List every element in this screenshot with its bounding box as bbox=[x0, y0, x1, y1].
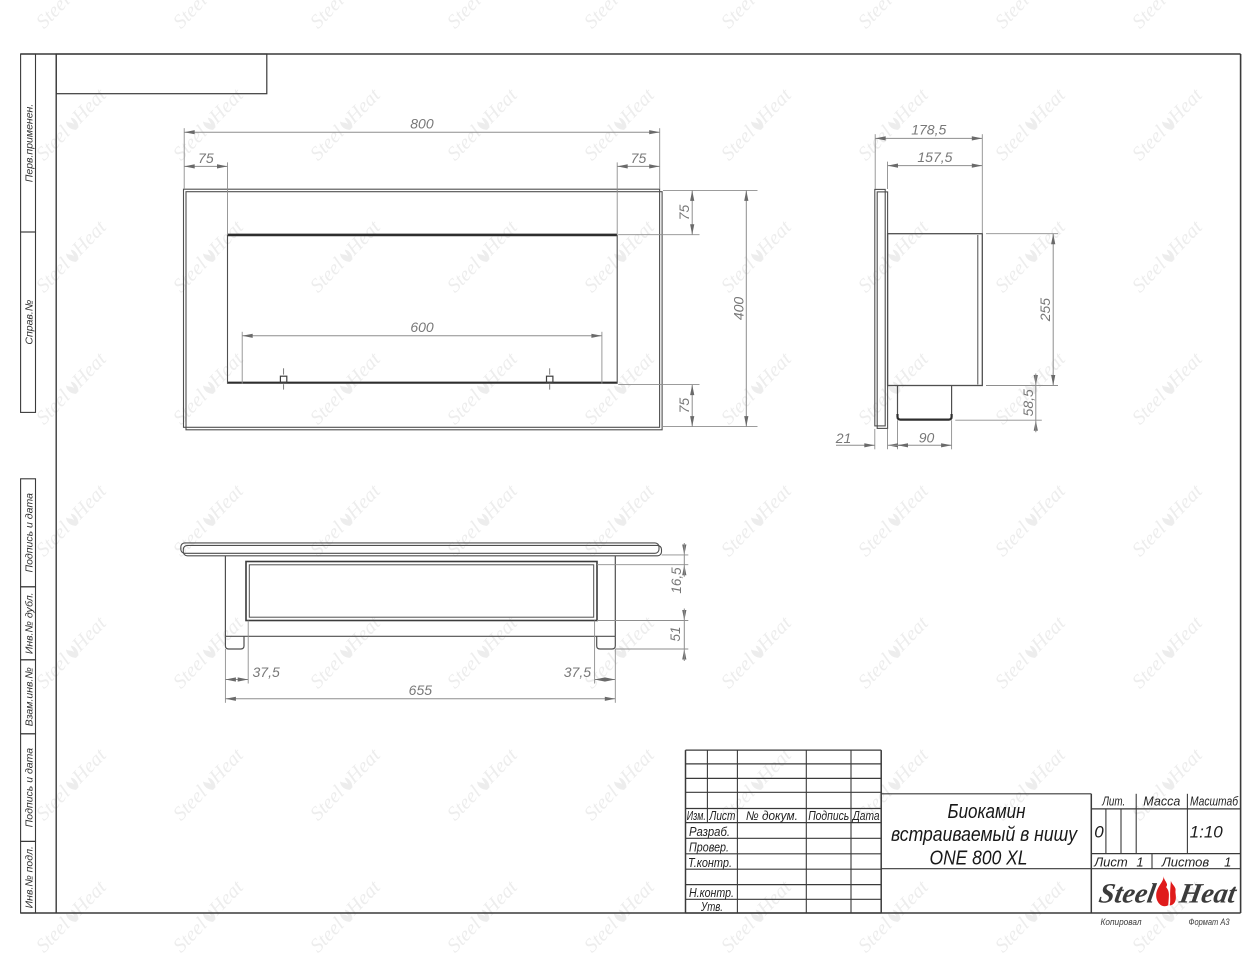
svg-text:178,5: 178,5 bbox=[911, 122, 946, 138]
svg-text:Изм.: Изм. bbox=[687, 809, 706, 823]
svg-text:400: 400 bbox=[730, 297, 746, 321]
svg-text:800: 800 bbox=[410, 116, 434, 132]
svg-text:Подпись: Подпись bbox=[808, 809, 849, 823]
svg-text:1: 1 bbox=[1136, 854, 1143, 869]
svg-text:ONE 800 XL: ONE 800 XL bbox=[930, 848, 1028, 870]
svg-text:Лист: Лист bbox=[709, 809, 736, 823]
svg-text:Масштаб: Масштаб bbox=[1190, 794, 1239, 808]
svg-text:51: 51 bbox=[668, 626, 683, 641]
svg-text:Утв.: Утв. bbox=[700, 900, 723, 914]
svg-text:255: 255 bbox=[1037, 298, 1053, 323]
svg-text:Биокамин: Биокамин bbox=[948, 801, 1026, 823]
svg-text:встраиваемый в нишу: встраиваемый в нишу bbox=[891, 824, 1078, 846]
svg-text:21: 21 bbox=[835, 430, 852, 446]
svg-text:Провер.: Провер. bbox=[689, 841, 729, 855]
svg-text:Инв.№ подл.: Инв.№ подл. bbox=[23, 846, 35, 908]
svg-text:Подпись и дата: Подпись и дата bbox=[23, 493, 35, 573]
svg-text:Подпись и дата: Подпись и дата bbox=[23, 748, 35, 828]
svg-text:0: 0 bbox=[1094, 823, 1104, 842]
svg-text:Разраб.: Разраб. bbox=[689, 825, 730, 839]
svg-text:1: 1 bbox=[1224, 854, 1231, 869]
svg-text:Копировал: Копировал bbox=[1101, 917, 1143, 928]
svg-text:Дата: Дата bbox=[851, 809, 880, 823]
svg-text:Формат А3: Формат А3 bbox=[1189, 917, 1231, 928]
svg-text:Лист: Лист bbox=[1093, 854, 1128, 869]
svg-text:Инв.№ дубл.: Инв.№ дубл. bbox=[23, 592, 35, 654]
svg-text:№ докум.: № докум. bbox=[746, 809, 798, 823]
svg-text:Heat: Heat bbox=[1176, 879, 1240, 910]
svg-text:Лит.: Лит. bbox=[1101, 794, 1125, 808]
svg-text:16,5: 16,5 bbox=[669, 567, 684, 594]
svg-text:90: 90 bbox=[919, 430, 935, 446]
svg-text:Н.контр.: Н.контр. bbox=[689, 886, 734, 900]
svg-text:Перв.применен.: Перв.применен. bbox=[23, 104, 35, 183]
svg-text:Steel: Steel bbox=[1097, 879, 1159, 910]
svg-text:Масса: Масса bbox=[1143, 794, 1180, 808]
svg-text:655: 655 bbox=[409, 682, 433, 698]
svg-text:37,5: 37,5 bbox=[564, 664, 591, 680]
svg-text:75: 75 bbox=[198, 150, 214, 166]
svg-text:1:10: 1:10 bbox=[1190, 823, 1224, 842]
svg-text:Листов: Листов bbox=[1161, 854, 1210, 869]
svg-text:157,5: 157,5 bbox=[917, 149, 952, 165]
svg-text:75: 75 bbox=[676, 398, 692, 414]
svg-text:37,5: 37,5 bbox=[253, 664, 280, 680]
svg-text:58,5: 58,5 bbox=[1020, 389, 1036, 416]
svg-text:75: 75 bbox=[631, 150, 647, 166]
svg-text:Взам.инв.№: Взам.инв.№ bbox=[23, 667, 35, 726]
svg-text:Справ.№: Справ.№ bbox=[23, 300, 35, 345]
svg-text:Т.контр.: Т.контр. bbox=[688, 856, 732, 870]
svg-text:600: 600 bbox=[410, 319, 434, 335]
svg-text:75: 75 bbox=[676, 205, 692, 221]
